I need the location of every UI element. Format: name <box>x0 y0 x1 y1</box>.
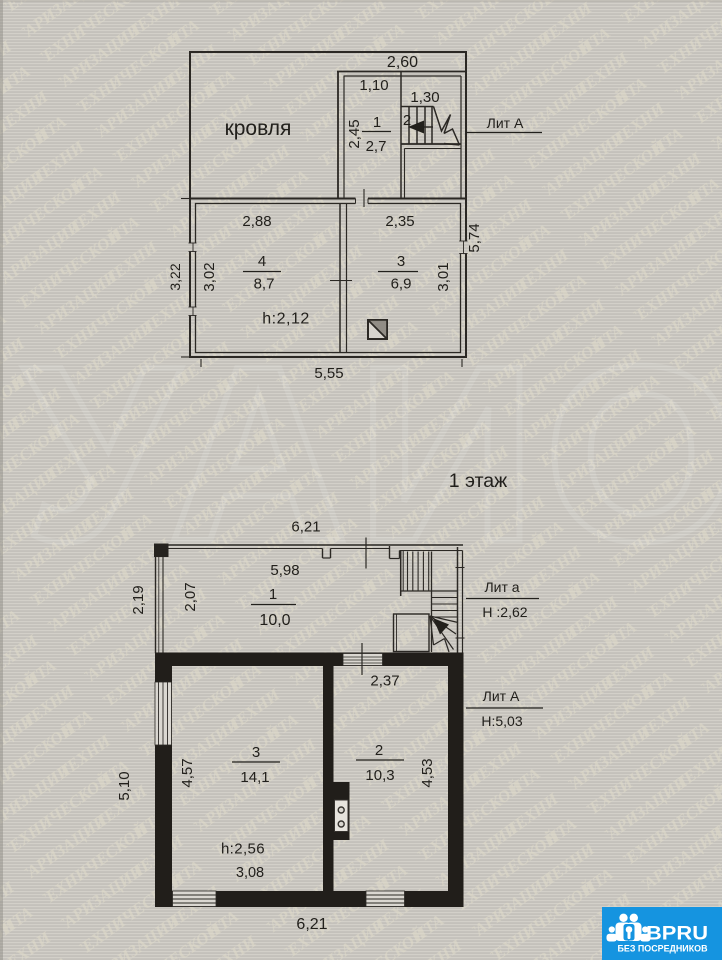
svg-text:BPRU: BPRU <box>646 924 708 945</box>
svg-text:3,02: 3,02 <box>201 262 218 291</box>
svg-text:3,01: 3,01 <box>435 262 452 291</box>
svg-text:Лит А: Лит А <box>487 115 524 131</box>
svg-text:3,08: 3,08 <box>236 865 264 881</box>
svg-text:5,55: 5,55 <box>314 365 343 382</box>
svg-text:Лит А: Лит А <box>483 688 520 704</box>
svg-text:h:2,56: h:2,56 <box>221 841 265 858</box>
svg-text:10,0: 10,0 <box>259 612 290 629</box>
svg-text:5,10: 5,10 <box>116 771 133 800</box>
svg-text:УАИО: УАИО <box>23 314 722 593</box>
svg-text:1,10: 1,10 <box>359 77 388 94</box>
svg-text:кровля: кровля <box>225 117 292 140</box>
svg-text:8,7: 8,7 <box>254 276 275 293</box>
svg-text:1,30: 1,30 <box>410 89 439 106</box>
svg-text:2,60: 2,60 <box>387 54 418 71</box>
svg-text:2,37: 2,37 <box>370 673 399 690</box>
svg-text:1: 1 <box>269 586 277 603</box>
svg-text:2,07: 2,07 <box>182 582 199 611</box>
svg-text:2,88: 2,88 <box>242 213 271 230</box>
svg-text:14,1: 14,1 <box>240 769 269 786</box>
svg-text:4,57: 4,57 <box>179 758 196 787</box>
svg-text:1 этаж: 1 этаж <box>449 470 507 492</box>
svg-text:Лит а: Лит а <box>484 579 519 595</box>
svg-text:1: 1 <box>373 114 381 131</box>
svg-text:Н :2,62: Н :2,62 <box>482 604 527 620</box>
svg-text:5,74: 5,74 <box>466 223 483 252</box>
svg-text:6,21: 6,21 <box>291 519 320 536</box>
svg-text:2,45: 2,45 <box>346 119 363 148</box>
svg-text:2,19: 2,19 <box>130 585 147 614</box>
svg-text:h:2,12: h:2,12 <box>262 311 309 328</box>
svg-text:4,53: 4,53 <box>419 758 436 787</box>
svg-text:10,3: 10,3 <box>365 767 394 784</box>
svg-text:2: 2 <box>375 742 383 759</box>
svg-text:2,35: 2,35 <box>385 213 414 230</box>
svg-text:5,98: 5,98 <box>270 562 299 579</box>
svg-text:3: 3 <box>397 253 405 270</box>
svg-text:3: 3 <box>252 744 260 761</box>
svg-text:2: 2 <box>403 112 411 129</box>
svg-text:Н:5,03: Н:5,03 <box>481 713 522 729</box>
svg-text:2,7: 2,7 <box>366 138 387 155</box>
svg-text:4: 4 <box>258 253 266 270</box>
svg-text:6,21: 6,21 <box>296 916 327 933</box>
svg-text:6,9: 6,9 <box>391 276 412 293</box>
svg-text:3,22: 3,22 <box>167 263 183 290</box>
svg-text:БЕЗ ПОСРЕДНИКОВ: БЕЗ ПОСРЕДНИКОВ <box>618 944 708 955</box>
